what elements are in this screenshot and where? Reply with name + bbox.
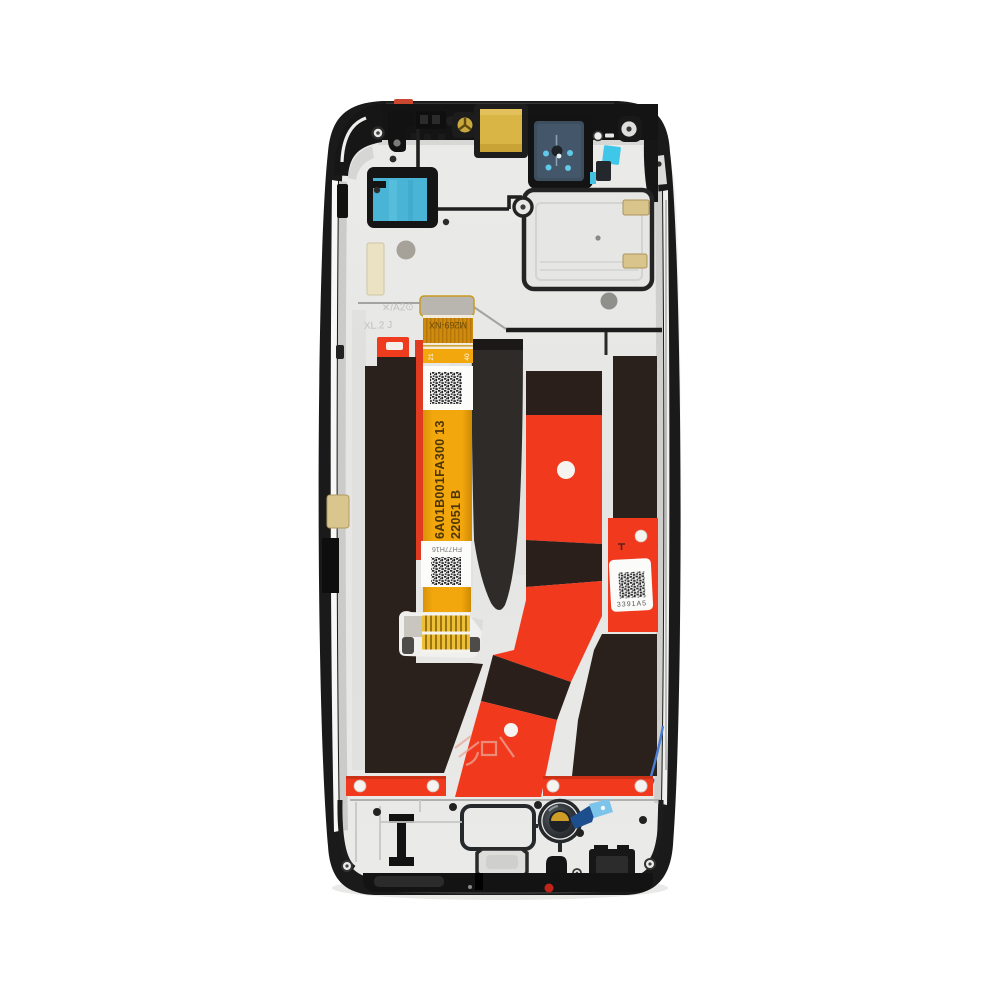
- svg-text:FH77H16: FH77H16: [432, 545, 462, 552]
- svg-text:M269-NX: M269-NX: [429, 320, 467, 330]
- svg-text:XL.2 J: XL.2 J: [364, 320, 393, 332]
- svg-text:6A01B001FA300 13: 6A01B001FA300 13: [433, 420, 447, 539]
- svg-text:21: 21: [428, 353, 435, 361]
- svg-text:40: 40: [464, 353, 471, 361]
- svg-text:22051 B: 22051 B: [449, 490, 463, 539]
- svg-text:✕/A2⊙: ✕/A2⊙: [382, 302, 414, 314]
